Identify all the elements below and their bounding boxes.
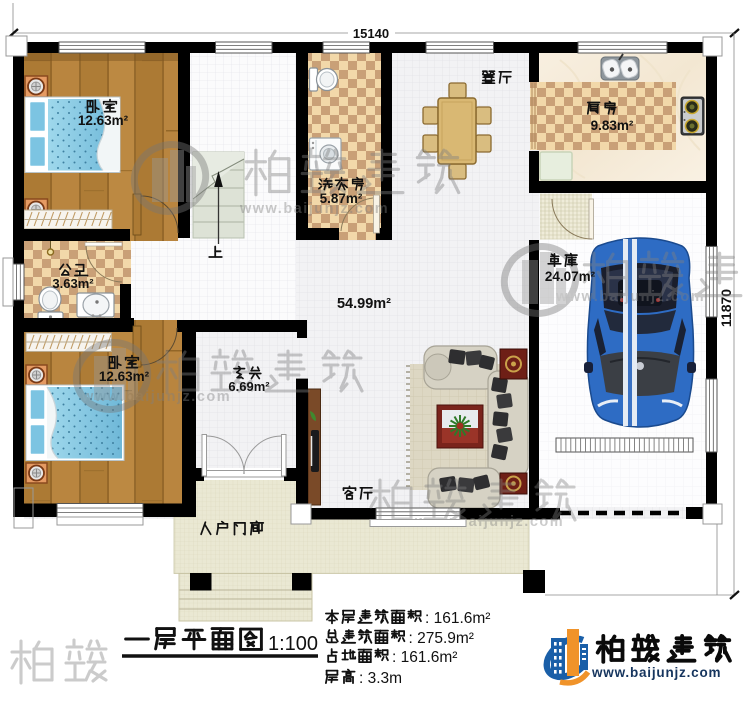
- svg-text:5.87m²: 5.87m²: [320, 191, 363, 206]
- svg-text:12.63m²: 12.63m²: [78, 113, 129, 128]
- svg-text:24.07m²: 24.07m²: [545, 269, 596, 284]
- svg-text:: 161.6m²: : 161.6m²: [392, 649, 457, 666]
- svg-text:15140: 15140: [353, 26, 389, 41]
- svg-text:: 275.9m²: : 275.9m²: [409, 630, 474, 647]
- svg-text:www.baijunjz.com: www.baijunjz.com: [81, 389, 231, 405]
- svg-text:: 3.3m: : 3.3m: [359, 670, 402, 687]
- svg-text:54.99m²: 54.99m²: [337, 296, 391, 312]
- svg-text:6.69m²: 6.69m²: [228, 379, 270, 394]
- svg-text:www.baijunjz.com: www.baijunjz.com: [555, 289, 705, 305]
- svg-text:12.63m²: 12.63m²: [99, 369, 150, 384]
- svg-text:www.baijunjz.com: www.baijunjz.com: [591, 665, 721, 680]
- svg-text:1:100: 1:100: [268, 633, 318, 655]
- svg-text:9.83m²: 9.83m²: [591, 118, 634, 133]
- svg-text:3.63m²: 3.63m²: [52, 276, 94, 291]
- svg-text:www.baijunjz.com: www.baijunjz.com: [239, 201, 389, 217]
- svg-text:: 161.6m²: : 161.6m²: [425, 610, 490, 627]
